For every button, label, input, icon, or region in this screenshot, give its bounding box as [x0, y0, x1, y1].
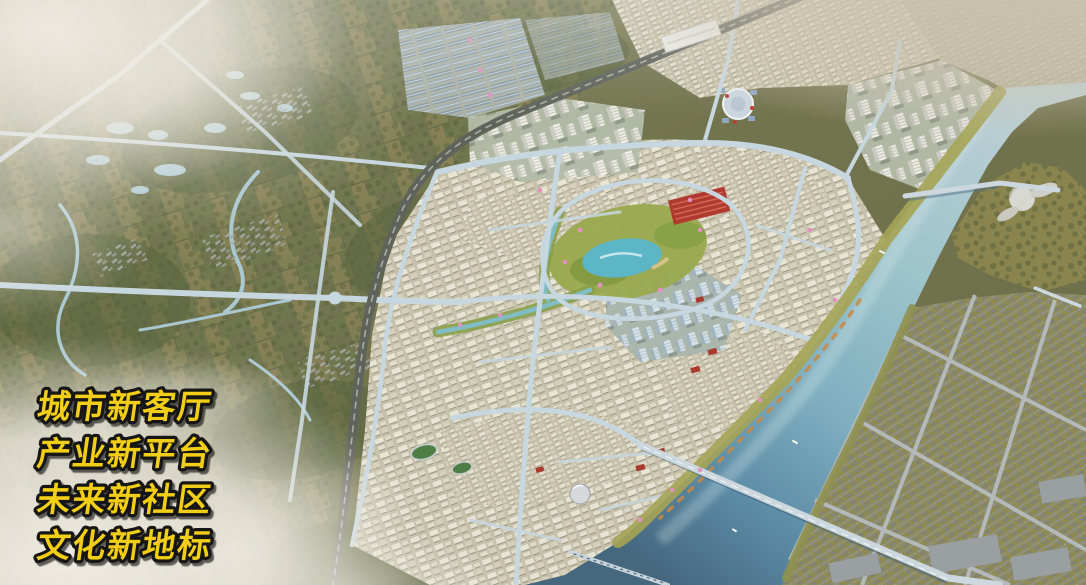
slogan-line-1: 城市新客厅 — [35, 387, 215, 426]
slogan-line-4: 文化新地标 — [35, 526, 215, 565]
slogan-line-2: 产业新平台 — [35, 434, 215, 473]
roundabout — [329, 292, 342, 305]
aerial-masterplan-render: 城市新客厅 产业新平台 未来新社区 文化新地标 — [0, 0, 1086, 585]
dome-building — [570, 484, 590, 504]
screenshot-root: 城市新客厅 产业新平台 未来新社区 文化新地标 — [0, 0, 1086, 585]
slogan-line-3: 未来新社区 — [35, 480, 215, 519]
